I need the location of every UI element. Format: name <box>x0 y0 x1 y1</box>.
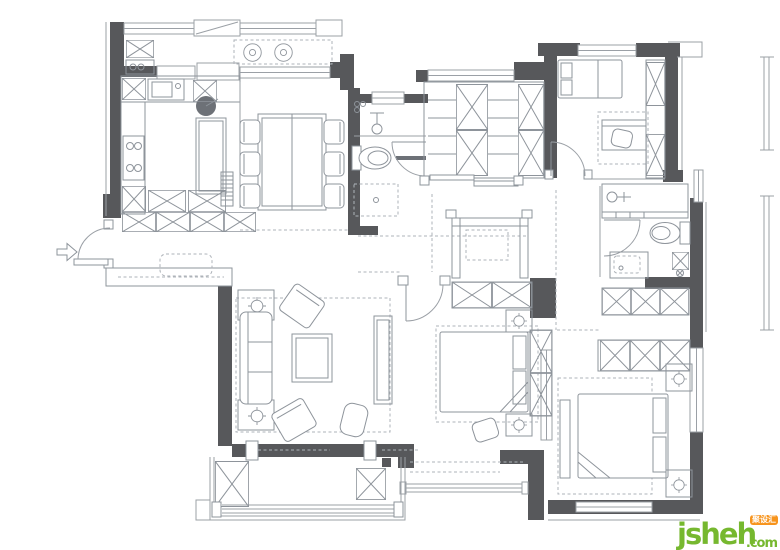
entry <box>57 212 256 286</box>
sliding-door <box>430 175 474 180</box>
shower-area <box>354 184 398 216</box>
toilet-icon-2 <box>650 222 690 244</box>
dryer-icon <box>275 44 293 62</box>
study-bedroom <box>545 60 665 179</box>
coffee-table <box>292 334 332 382</box>
desk-chair <box>610 128 633 149</box>
kitchen <box>121 76 240 214</box>
south-balcony <box>196 457 405 520</box>
tv-console <box>374 316 392 404</box>
armchair <box>278 283 326 330</box>
entrance-arrow-icon <box>57 244 77 261</box>
washing-machine-icon <box>244 44 262 62</box>
mirror <box>396 156 426 160</box>
armchair <box>270 397 317 443</box>
lamp-icon <box>511 417 527 433</box>
faucet-icon <box>370 113 384 134</box>
watermark-logo: jsheh 聚设汇 .com <box>677 518 777 549</box>
single-bed <box>558 60 622 98</box>
master-bedroom <box>530 330 692 497</box>
sofa <box>240 312 272 404</box>
shower-head-icon <box>607 192 631 202</box>
shoe-cabinet <box>122 212 155 232</box>
ensuite-bathroom <box>600 184 690 278</box>
walk-in-closet <box>420 82 544 186</box>
entry-door-leaf <box>74 259 108 265</box>
watermark-badge: 聚设汇 <box>750 515 778 525</box>
lamp-icon <box>511 313 527 329</box>
master-bed <box>578 394 668 478</box>
floor-plan-drawing <box>0 0 780 550</box>
floor-plan-canvas: jsheh 聚设汇 .com <box>0 0 780 550</box>
dining-room <box>240 114 344 210</box>
double-bed <box>440 332 528 412</box>
watermark-tld: .com <box>746 537 777 550</box>
hallway-cabinets <box>602 288 689 315</box>
toilet-icon <box>352 146 391 170</box>
lamp-icon <box>671 477 687 493</box>
stove <box>123 136 144 180</box>
ottoman <box>338 402 369 439</box>
middle-bedroom <box>398 276 538 472</box>
desk-nook <box>446 210 532 278</box>
entry-door-swing <box>78 228 110 259</box>
lamp-icon <box>671 371 687 387</box>
watermark-brand: jsheh <box>677 520 755 549</box>
lamp-icon <box>248 407 266 425</box>
living-room <box>236 283 420 460</box>
bedroom-chair <box>471 417 500 443</box>
guest-bathroom <box>352 102 426 217</box>
